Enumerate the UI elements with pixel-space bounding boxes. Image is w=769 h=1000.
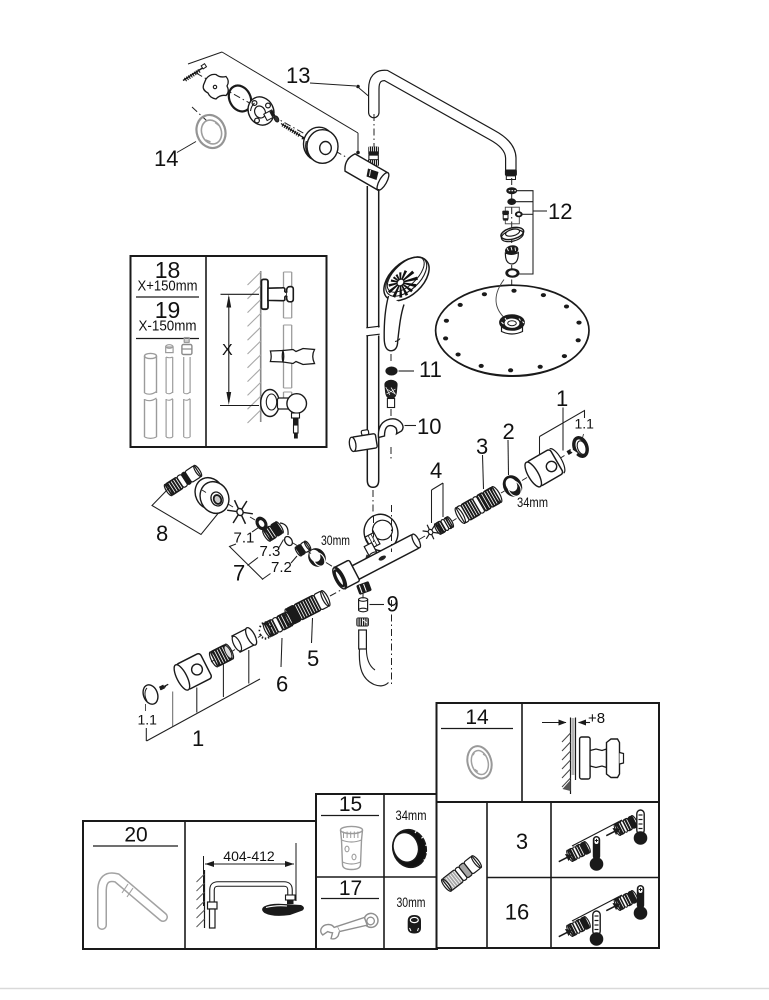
- svg-text:5: 5: [307, 646, 319, 671]
- svg-text:X-150mm: X-150mm: [139, 318, 197, 335]
- svg-text:7: 7: [233, 561, 245, 586]
- svg-text:12: 12: [548, 199, 572, 224]
- svg-text:7.3: 7.3: [260, 543, 281, 560]
- svg-text:X+150mm: X+150mm: [138, 278, 198, 295]
- svg-text:20: 20: [124, 824, 147, 847]
- svg-text:X: X: [222, 342, 233, 359]
- svg-text:+8: +8: [588, 710, 605, 727]
- svg-text:14: 14: [154, 146, 178, 171]
- svg-text:9: 9: [387, 592, 399, 617]
- svg-text:13: 13: [286, 63, 310, 88]
- svg-text:1.1: 1.1: [575, 416, 595, 432]
- svg-text:8: 8: [156, 521, 168, 546]
- svg-text:11: 11: [419, 357, 442, 382]
- svg-text:404-412: 404-412: [223, 848, 275, 864]
- svg-text:1: 1: [556, 386, 568, 411]
- svg-text:6: 6: [276, 672, 288, 697]
- svg-text:7.1: 7.1: [234, 530, 255, 547]
- svg-text:7.2: 7.2: [271, 559, 292, 576]
- svg-text:14: 14: [465, 706, 489, 729]
- svg-text:30mm: 30mm: [397, 894, 426, 910]
- svg-text:4: 4: [430, 458, 442, 483]
- svg-text:3: 3: [516, 829, 528, 854]
- svg-text:34mm: 34mm: [396, 807, 427, 823]
- svg-text:16: 16: [505, 900, 529, 925]
- svg-text:10: 10: [417, 414, 441, 439]
- svg-text:1: 1: [192, 726, 204, 751]
- svg-text:2: 2: [503, 419, 515, 444]
- svg-text:17: 17: [339, 877, 362, 900]
- svg-text:30mm: 30mm: [321, 532, 350, 548]
- svg-text:3: 3: [476, 434, 488, 459]
- svg-text:34mm: 34mm: [517, 494, 548, 510]
- svg-text:1.1: 1.1: [138, 712, 158, 728]
- svg-text:15: 15: [339, 793, 362, 816]
